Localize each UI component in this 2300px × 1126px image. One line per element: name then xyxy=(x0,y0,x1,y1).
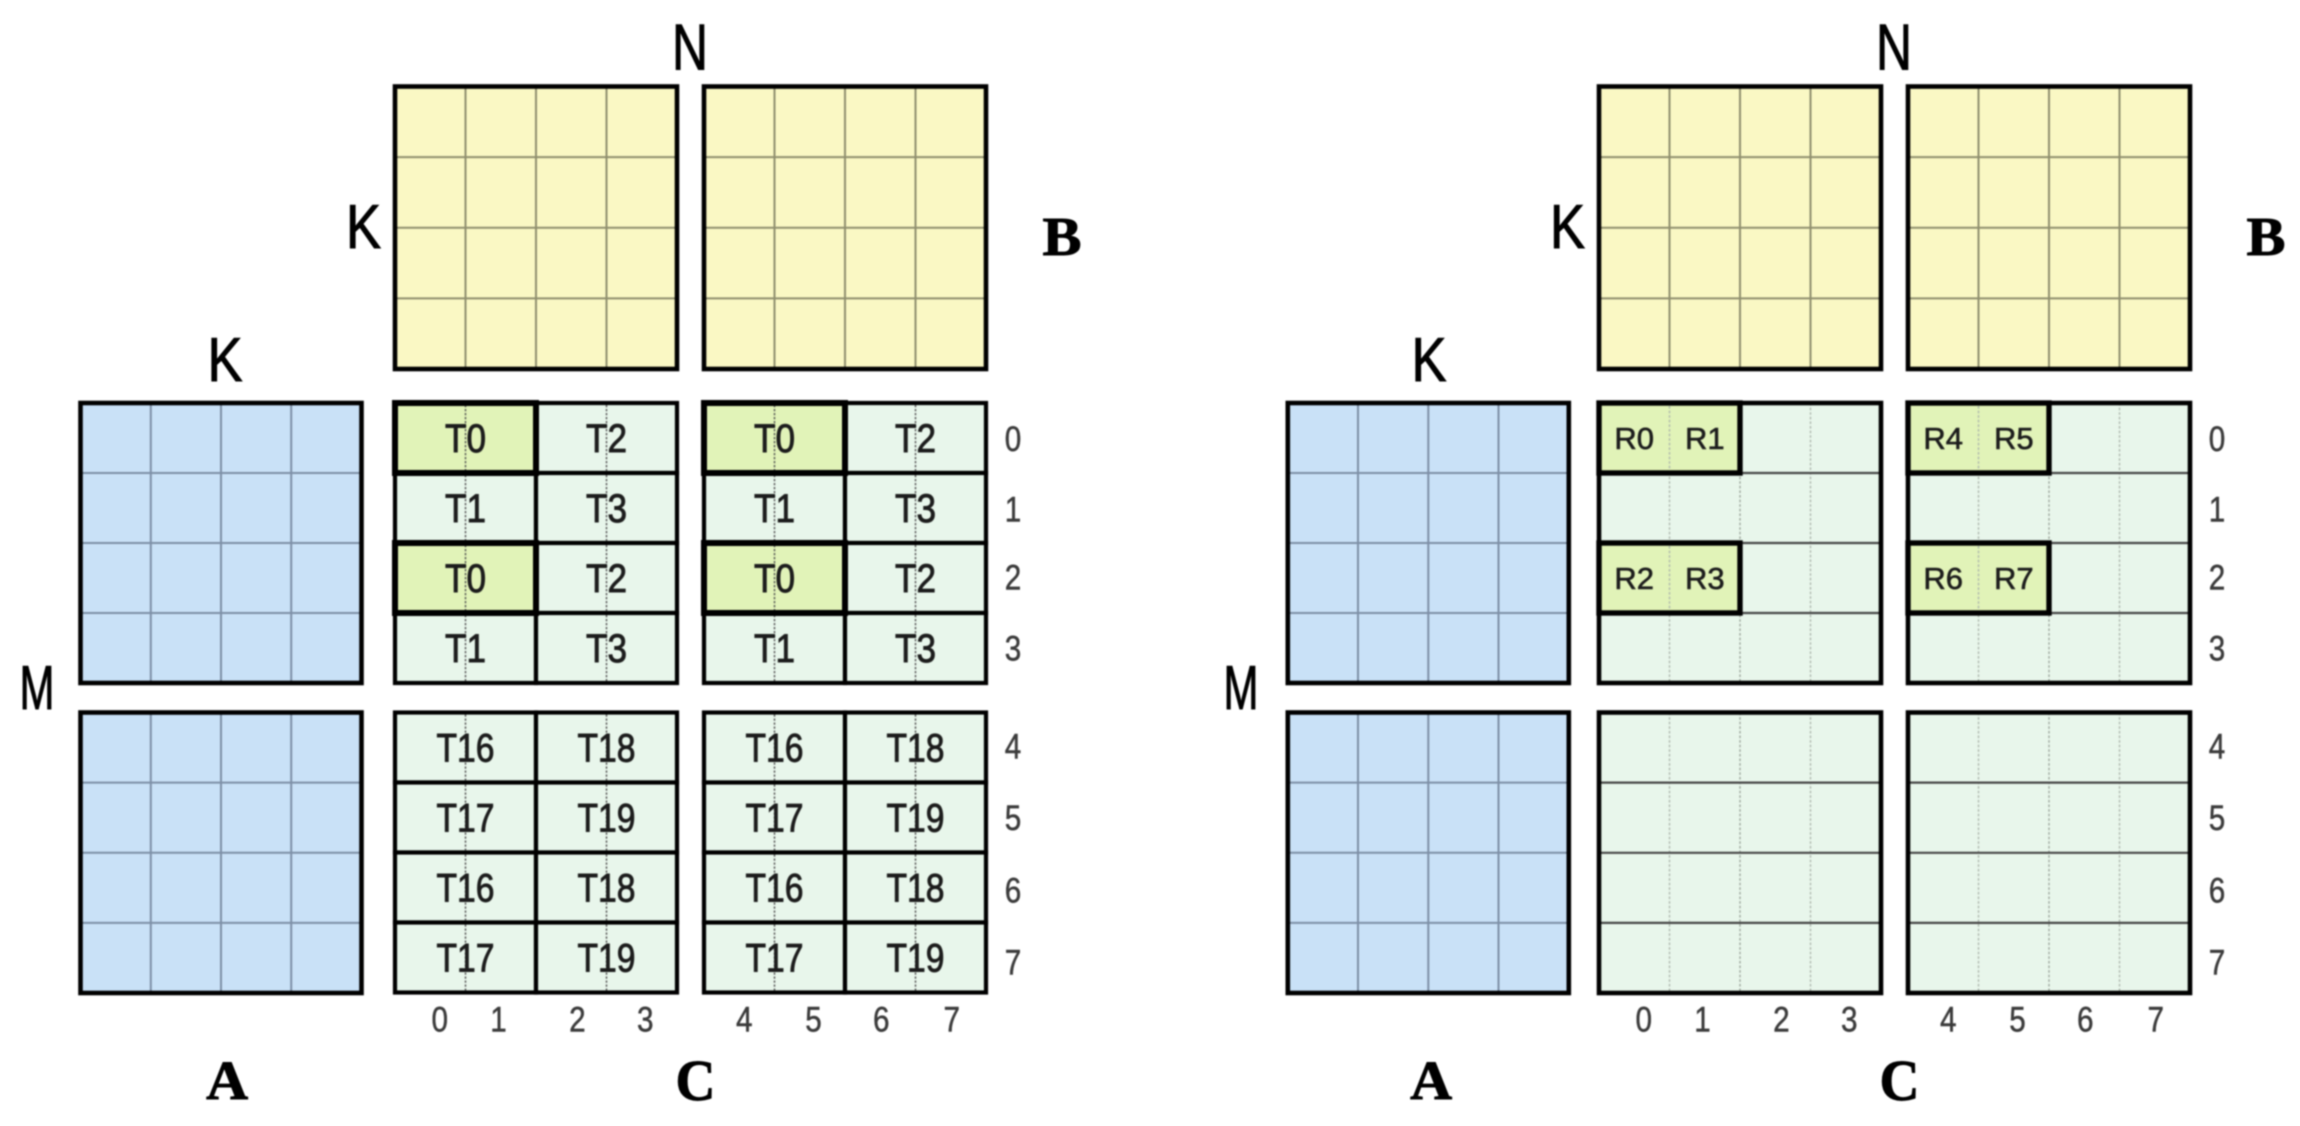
svg-text:1: 1 xyxy=(1694,1001,1711,1040)
svg-text:2: 2 xyxy=(2209,559,2226,598)
svg-text:T0: T0 xyxy=(754,557,795,601)
svg-text:T17: T17 xyxy=(437,937,495,981)
svg-text:K: K xyxy=(1550,192,1585,262)
svg-text:T1: T1 xyxy=(754,487,795,531)
svg-text:B: B xyxy=(2247,206,2286,267)
svg-text:C: C xyxy=(1880,1048,1920,1113)
svg-text:5: 5 xyxy=(1005,799,1022,838)
svg-text:0: 0 xyxy=(1005,420,1022,459)
svg-text:T3: T3 xyxy=(586,487,627,531)
svg-text:1: 1 xyxy=(1005,490,1022,529)
svg-text:1: 1 xyxy=(2209,490,2226,529)
svg-text:T19: T19 xyxy=(887,937,945,981)
svg-text:6: 6 xyxy=(1005,872,1022,911)
svg-text:T16: T16 xyxy=(746,727,804,771)
svg-text:4: 4 xyxy=(736,1001,753,1040)
svg-text:5: 5 xyxy=(805,1001,822,1040)
svg-text:0: 0 xyxy=(1636,1001,1653,1040)
svg-text:7: 7 xyxy=(2209,944,2226,983)
svg-text:T3: T3 xyxy=(895,627,936,671)
svg-text:T19: T19 xyxy=(887,797,945,841)
svg-text:7: 7 xyxy=(2147,1001,2164,1040)
svg-text:T2: T2 xyxy=(895,417,936,461)
svg-text:3: 3 xyxy=(1841,1001,1858,1040)
svg-text:N: N xyxy=(1876,11,1912,84)
svg-text:T16: T16 xyxy=(437,727,495,771)
svg-text:T19: T19 xyxy=(578,797,636,841)
svg-text:7: 7 xyxy=(1005,944,1022,983)
svg-text:6: 6 xyxy=(2209,872,2226,911)
svg-text:0: 0 xyxy=(2209,420,2226,459)
svg-text:6: 6 xyxy=(873,1001,890,1040)
svg-text:3: 3 xyxy=(1005,630,1022,669)
svg-text:R7: R7 xyxy=(1994,561,2034,596)
svg-text:T0: T0 xyxy=(754,417,795,461)
svg-text:A: A xyxy=(206,1050,248,1111)
svg-text:4: 4 xyxy=(1005,728,1022,767)
svg-text:B: B xyxy=(1043,206,1082,267)
svg-text:T1: T1 xyxy=(445,487,486,531)
svg-text:T1: T1 xyxy=(754,627,795,671)
svg-text:5: 5 xyxy=(2209,799,2226,838)
svg-text:T3: T3 xyxy=(895,487,936,531)
svg-text:K: K xyxy=(1412,325,1447,395)
svg-text:T17: T17 xyxy=(437,797,495,841)
svg-text:T16: T16 xyxy=(746,867,804,911)
svg-text:M: M xyxy=(1224,653,1259,723)
svg-text:R5: R5 xyxy=(1994,421,2034,456)
svg-text:4: 4 xyxy=(1940,1001,1957,1040)
svg-text:4: 4 xyxy=(2209,728,2226,767)
svg-text:R1: R1 xyxy=(1685,421,1725,456)
svg-text:T17: T17 xyxy=(746,937,804,981)
svg-text:3: 3 xyxy=(637,1001,654,1040)
svg-text:R6: R6 xyxy=(1923,561,1963,596)
svg-text:R2: R2 xyxy=(1614,561,1654,596)
svg-text:0: 0 xyxy=(432,1001,449,1040)
svg-text:T2: T2 xyxy=(895,557,936,601)
svg-text:C: C xyxy=(676,1048,716,1113)
svg-text:T0: T0 xyxy=(445,557,486,601)
svg-text:2: 2 xyxy=(1005,559,1022,598)
svg-text:K: K xyxy=(346,192,381,262)
svg-text:T18: T18 xyxy=(887,727,945,771)
svg-text:T16: T16 xyxy=(437,867,495,911)
svg-text:T18: T18 xyxy=(578,727,636,771)
svg-text:R4: R4 xyxy=(1923,421,1963,456)
svg-text:M: M xyxy=(20,653,55,723)
svg-text:2: 2 xyxy=(1773,1001,1790,1040)
svg-text:T18: T18 xyxy=(578,867,636,911)
svg-text:N: N xyxy=(672,11,708,84)
svg-text:7: 7 xyxy=(943,1001,960,1040)
svg-text:T18: T18 xyxy=(887,867,945,911)
svg-text:T3: T3 xyxy=(586,627,627,671)
svg-text:3: 3 xyxy=(2209,630,2226,669)
svg-text:T2: T2 xyxy=(586,417,627,461)
svg-text:T19: T19 xyxy=(578,937,636,981)
svg-text:5: 5 xyxy=(2009,1001,2026,1040)
svg-text:R3: R3 xyxy=(1685,561,1725,596)
svg-text:R0: R0 xyxy=(1614,421,1654,456)
svg-text:T2: T2 xyxy=(586,557,627,601)
svg-text:T0: T0 xyxy=(445,417,486,461)
svg-text:A: A xyxy=(1410,1050,1452,1111)
svg-text:6: 6 xyxy=(2077,1001,2094,1040)
svg-text:1: 1 xyxy=(490,1001,507,1040)
svg-text:T1: T1 xyxy=(445,627,486,671)
svg-text:2: 2 xyxy=(569,1001,586,1040)
svg-text:K: K xyxy=(208,325,243,395)
svg-text:T17: T17 xyxy=(746,797,804,841)
